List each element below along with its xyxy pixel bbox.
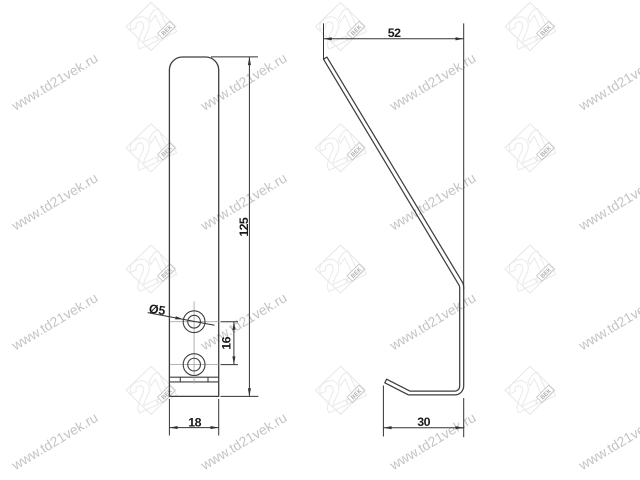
svg-text:52: 52 <box>388 26 401 40</box>
svg-text:30: 30 <box>417 415 430 429</box>
svg-text:Ø5: Ø5 <box>148 302 167 318</box>
svg-text:18: 18 <box>188 415 201 429</box>
svg-text:16: 16 <box>219 336 233 349</box>
svg-text:125: 125 <box>237 217 251 237</box>
